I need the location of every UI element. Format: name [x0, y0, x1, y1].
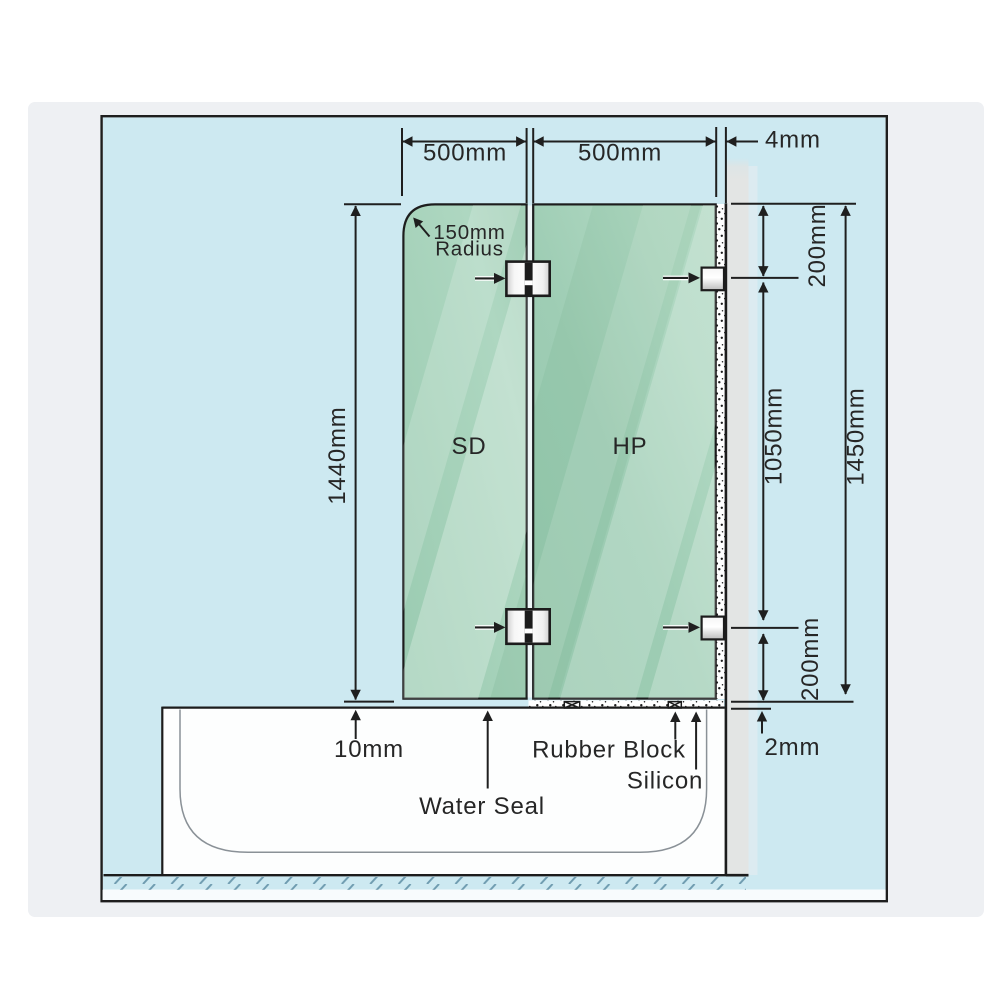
svg-text:500mm: 500mm	[423, 140, 507, 167]
svg-text:1450mm: 1450mm	[843, 387, 870, 485]
svg-text:Radius: Radius	[435, 238, 504, 261]
svg-text:Water Seal: Water Seal	[419, 793, 545, 820]
svg-text:200mm: 200mm	[797, 617, 824, 701]
svg-text:10mm: 10mm	[334, 736, 404, 763]
svg-text:4mm: 4mm	[765, 127, 821, 154]
svg-text:1050mm: 1050mm	[761, 387, 788, 485]
svg-text:Silicon: Silicon	[627, 768, 703, 795]
svg-text:200mm: 200mm	[804, 203, 831, 287]
svg-text:1440mm: 1440mm	[324, 406, 351, 504]
svg-text:HP: HP	[613, 433, 648, 460]
svg-text:2mm: 2mm	[765, 734, 821, 761]
svg-text:SD: SD	[452, 433, 487, 460]
svg-text:500mm: 500mm	[578, 140, 662, 167]
svg-text:Rubber Block: Rubber Block	[532, 737, 686, 764]
